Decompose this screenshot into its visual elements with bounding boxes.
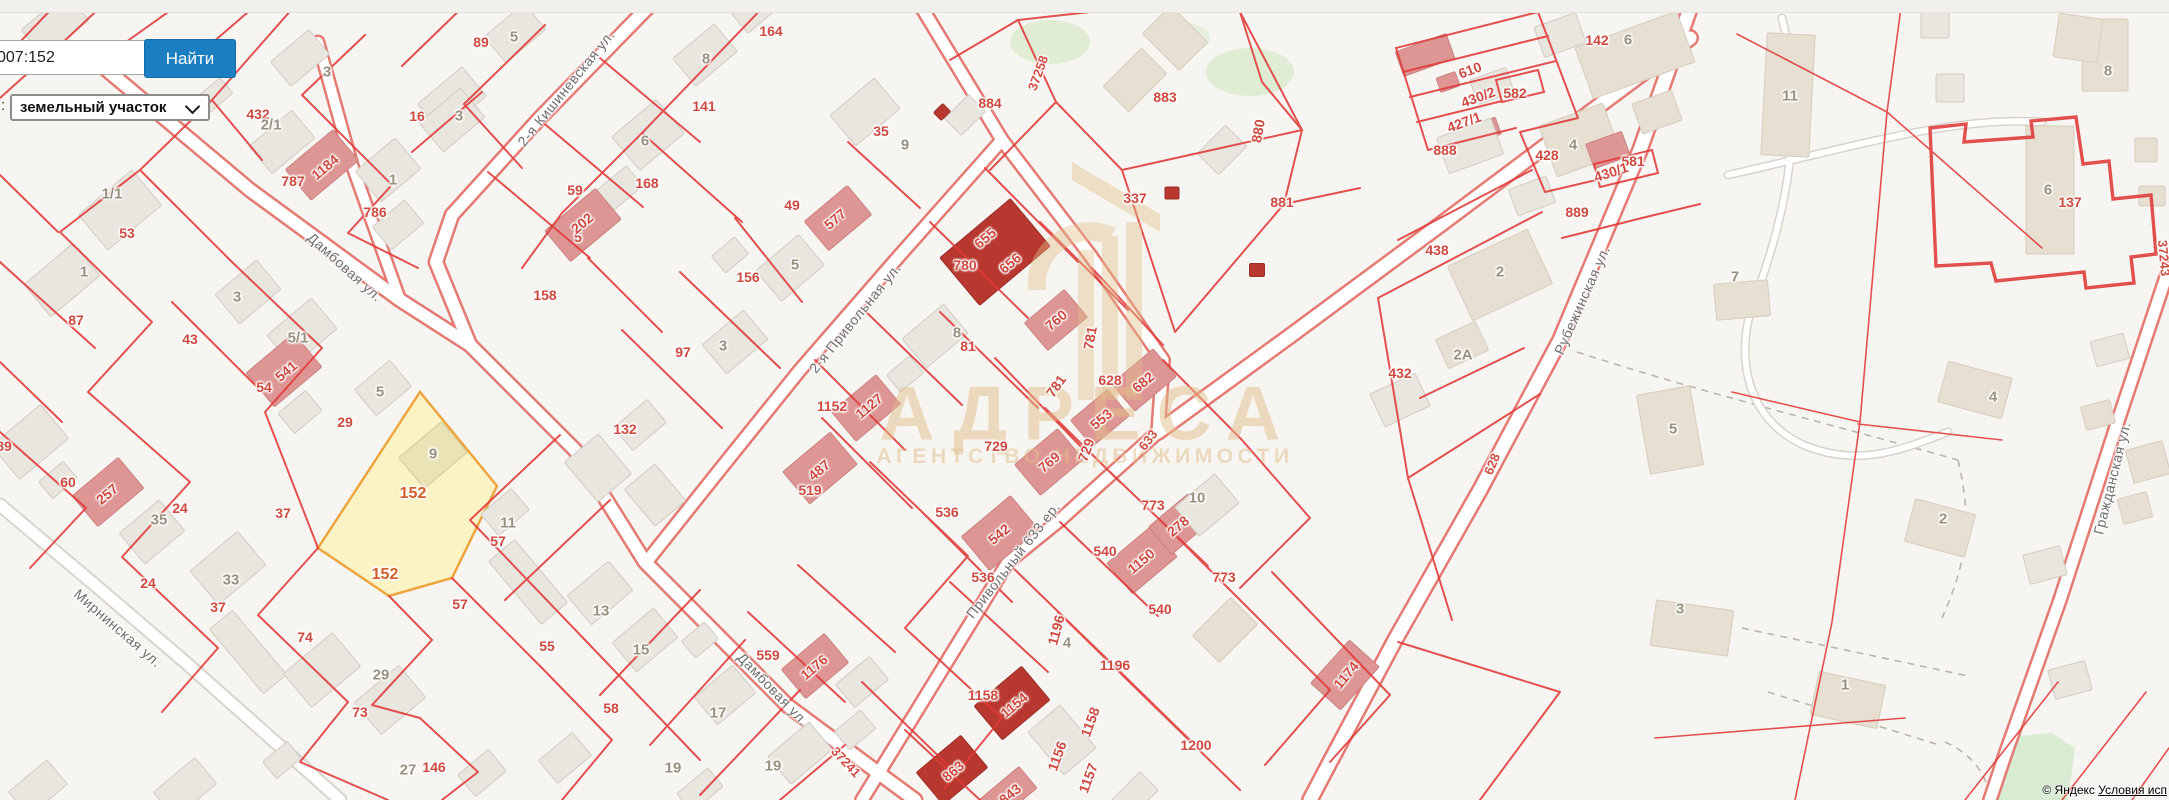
building-number: 3 bbox=[719, 338, 727, 355]
parcel-number: 35 bbox=[873, 123, 889, 139]
parcel-number: 628 bbox=[1098, 372, 1121, 388]
parcel-number: 73 bbox=[352, 704, 368, 720]
parcel-number: 438 bbox=[1425, 242, 1448, 258]
building-number: 9 bbox=[429, 446, 437, 463]
parcel-number: 432 bbox=[1388, 365, 1411, 381]
parcel-number: 786 bbox=[363, 204, 386, 220]
building-number: 5 bbox=[1669, 421, 1677, 438]
terms-of-use-link[interactable]: Условия исп bbox=[2098, 783, 2167, 797]
parcel-number: 164 bbox=[759, 23, 782, 39]
building bbox=[1714, 280, 1771, 321]
building-number: 9 bbox=[901, 137, 909, 154]
yandex-copyright: © Яндекс bbox=[2042, 783, 2095, 797]
parcel-number: 57 bbox=[490, 533, 506, 549]
parcel-number: 1196 bbox=[1100, 657, 1130, 673]
parcel-number: 168 bbox=[635, 175, 658, 191]
object-type-label: : bbox=[1, 97, 5, 114]
parcel-number: 132 bbox=[613, 421, 636, 437]
building-number: 4 bbox=[1569, 137, 1577, 154]
building-number: 1 bbox=[1841, 677, 1849, 694]
cadastral-map-app: АДРЕСА АГЕНТСТВО НЕДВИЖИМОСТИ Дамбовая у… bbox=[0, 0, 2169, 800]
building-number: 35 bbox=[151, 512, 168, 529]
parcel-number: 57 bbox=[452, 596, 468, 612]
building-number: 1 bbox=[80, 264, 88, 281]
road-number: 37243 bbox=[2155, 239, 2169, 276]
building-number: 19 bbox=[765, 758, 782, 775]
parcel-number: 142 bbox=[1585, 32, 1608, 48]
parcel-number: 87 bbox=[68, 312, 84, 328]
parcel-number: 49 bbox=[784, 197, 800, 213]
parcel-number: 773 bbox=[1141, 497, 1164, 513]
building-number: 27 bbox=[400, 762, 417, 779]
building-number: 3 bbox=[233, 289, 241, 306]
parcel-number: 24 bbox=[172, 500, 188, 516]
building-number: 1 bbox=[389, 172, 397, 189]
parcel-number: 37 bbox=[210, 599, 226, 615]
parcel-number: 97 bbox=[675, 344, 691, 360]
building-number: 4 bbox=[1063, 635, 1071, 652]
parcel-number: 54 bbox=[256, 379, 272, 395]
parcel-number: 37 bbox=[275, 505, 291, 521]
parcel-number: 55 bbox=[539, 638, 555, 654]
parcel-number: 428 bbox=[1535, 147, 1558, 163]
building-number: 8 bbox=[702, 51, 710, 68]
parcel-number: 787 bbox=[281, 173, 304, 189]
parcel-number: 540 bbox=[1148, 601, 1171, 617]
building-number: 8 bbox=[953, 325, 961, 342]
parcel-number: 582 bbox=[1503, 85, 1526, 101]
object-type-select[interactable]: земельный участок bbox=[10, 94, 210, 121]
object-type-value: земельный участок bbox=[20, 99, 166, 116]
parcel-number: 16 bbox=[409, 108, 425, 124]
parcel-number: 58 bbox=[603, 700, 619, 716]
building-number: 2А bbox=[1453, 347, 1472, 364]
building-number: 11 bbox=[1782, 88, 1798, 105]
building-number: 10 bbox=[1189, 490, 1206, 507]
parcel-number: 24 bbox=[140, 575, 156, 591]
highlighted-parcel-number: 152 bbox=[400, 485, 427, 503]
parcel-number: 780 bbox=[953, 257, 976, 273]
building-number: 5/1 bbox=[288, 330, 309, 347]
building-number: 2/1 bbox=[261, 117, 282, 134]
building-number: 3 bbox=[1676, 601, 1684, 618]
parcel-number: 559 bbox=[756, 647, 779, 663]
map-attribution: © Яндекс Условия исп bbox=[2042, 783, 2167, 797]
parcel-number: 89 bbox=[473, 34, 489, 50]
parcel-number: 89 bbox=[0, 438, 12, 454]
parcel-number: 43 bbox=[182, 331, 198, 347]
parcel-number: 158 bbox=[533, 287, 556, 303]
parcel-number: 881 bbox=[1270, 194, 1293, 210]
parcel-number: 1200 bbox=[1180, 737, 1211, 753]
parcel-number: 156 bbox=[736, 269, 759, 285]
parcel-number: 773 bbox=[1212, 569, 1235, 585]
parcel-number: 519 bbox=[798, 482, 821, 498]
building-number: 11 bbox=[500, 515, 516, 532]
building-number: 15 bbox=[633, 642, 650, 659]
building-number: 13 bbox=[593, 603, 610, 620]
building-number: 6 bbox=[2044, 182, 2052, 199]
parcel-number: 884 bbox=[978, 95, 1001, 111]
building-number: 19 bbox=[665, 760, 682, 777]
parcel-number: 146 bbox=[422, 759, 445, 775]
cadastral-search-input[interactable] bbox=[0, 40, 154, 75]
parcel-number: 883 bbox=[1153, 89, 1176, 105]
building-number: 1/1 bbox=[102, 186, 123, 203]
building bbox=[1936, 74, 1964, 102]
building bbox=[2053, 13, 2103, 63]
parcel-number: 81 bbox=[960, 338, 976, 354]
building-oks-registered bbox=[1165, 187, 1179, 199]
parcel-number: 53 bbox=[119, 225, 135, 241]
parcel-number: 889 bbox=[1565, 204, 1588, 220]
parcel-number: 536 bbox=[971, 569, 994, 585]
building-number: 5 bbox=[510, 29, 518, 46]
map-top-strip bbox=[0, 0, 2169, 13]
parcel-number: 137 bbox=[2058, 194, 2081, 210]
building-number: 4 bbox=[1989, 389, 1997, 406]
building-number: 5 bbox=[376, 384, 384, 401]
parcel-number: 60 bbox=[60, 474, 76, 490]
highlighted-parcel-number: 152 bbox=[372, 566, 399, 584]
building-number: 6 bbox=[641, 133, 649, 150]
parcel-number: 1158 bbox=[968, 687, 998, 703]
building-number: 5 bbox=[791, 257, 799, 274]
parcel-number: 74 bbox=[297, 629, 313, 645]
find-button[interactable]: Найти bbox=[144, 39, 236, 78]
building bbox=[2135, 138, 2157, 162]
building-number: 8 bbox=[2104, 63, 2112, 80]
building-number: 7 bbox=[1731, 269, 1739, 286]
building-number: 29 bbox=[373, 667, 390, 684]
parcel-number: 540 bbox=[1093, 543, 1116, 559]
parcel-number: 729 bbox=[984, 438, 1007, 454]
parcel-number: 59 bbox=[567, 182, 583, 198]
building-number: 6 bbox=[1624, 32, 1632, 49]
parcel-number: 1152 bbox=[817, 398, 847, 414]
building-number: 3 bbox=[455, 108, 463, 125]
building-number: 2 bbox=[1939, 511, 1947, 528]
parcel-number: 141 bbox=[692, 98, 715, 114]
parcel-number: 29 bbox=[337, 414, 353, 430]
building-number: 2 bbox=[1496, 264, 1504, 281]
parcel-number: 337 bbox=[1123, 190, 1146, 206]
building-number: 33 bbox=[223, 572, 240, 589]
building-oks-registered bbox=[1250, 264, 1265, 277]
building-number: 3 bbox=[323, 64, 331, 81]
parcel-number: 888 bbox=[1433, 142, 1456, 158]
building-number: 17 bbox=[710, 705, 727, 722]
chevron-down-icon bbox=[185, 99, 201, 115]
parcel-number: 536 bbox=[935, 504, 958, 520]
